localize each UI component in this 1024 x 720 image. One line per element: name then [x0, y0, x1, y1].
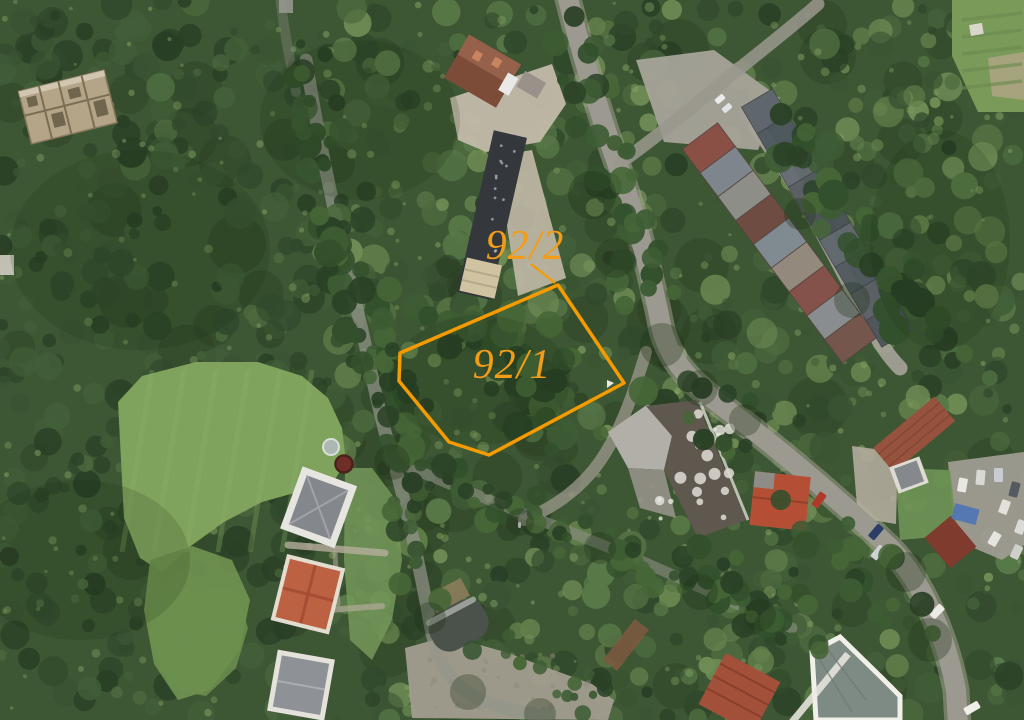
building-gray-house — [267, 650, 335, 720]
parcel-92-1-label: 92/1 — [473, 342, 552, 388]
parcel-92-2-label: 92/2 — [486, 223, 565, 269]
aerial-map-view[interactable]: 92/2 92/1 — [0, 0, 1024, 720]
aerial-imagery: 92/2 92/1 — [0, 0, 1024, 720]
